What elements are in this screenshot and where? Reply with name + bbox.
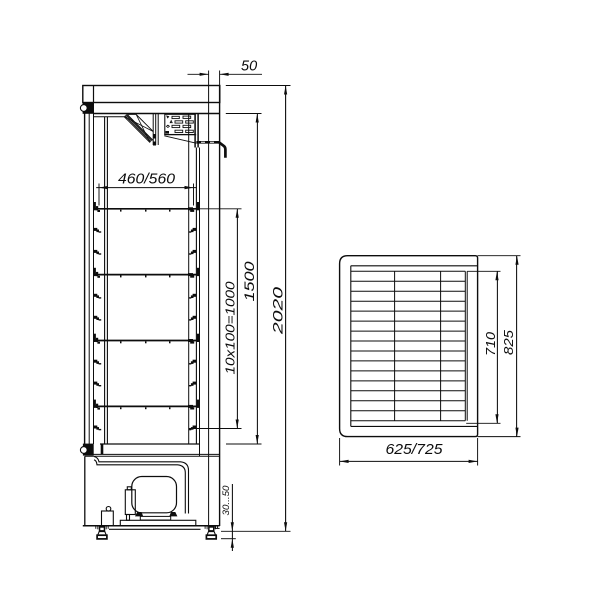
svg-text:710: 710 [483, 331, 498, 356]
svg-text:2020: 2020 [269, 287, 285, 336]
svg-text:50: 50 [241, 59, 257, 75]
svg-text:30...50: 30...50 [221, 485, 232, 516]
svg-text:825: 825 [501, 329, 516, 355]
svg-text:625/725: 625/725 [386, 442, 444, 458]
svg-text:460/560: 460/560 [118, 172, 175, 188]
svg-text:10x100=1000: 10x100=1000 [224, 281, 238, 374]
svg-text:1500: 1500 [241, 261, 257, 301]
